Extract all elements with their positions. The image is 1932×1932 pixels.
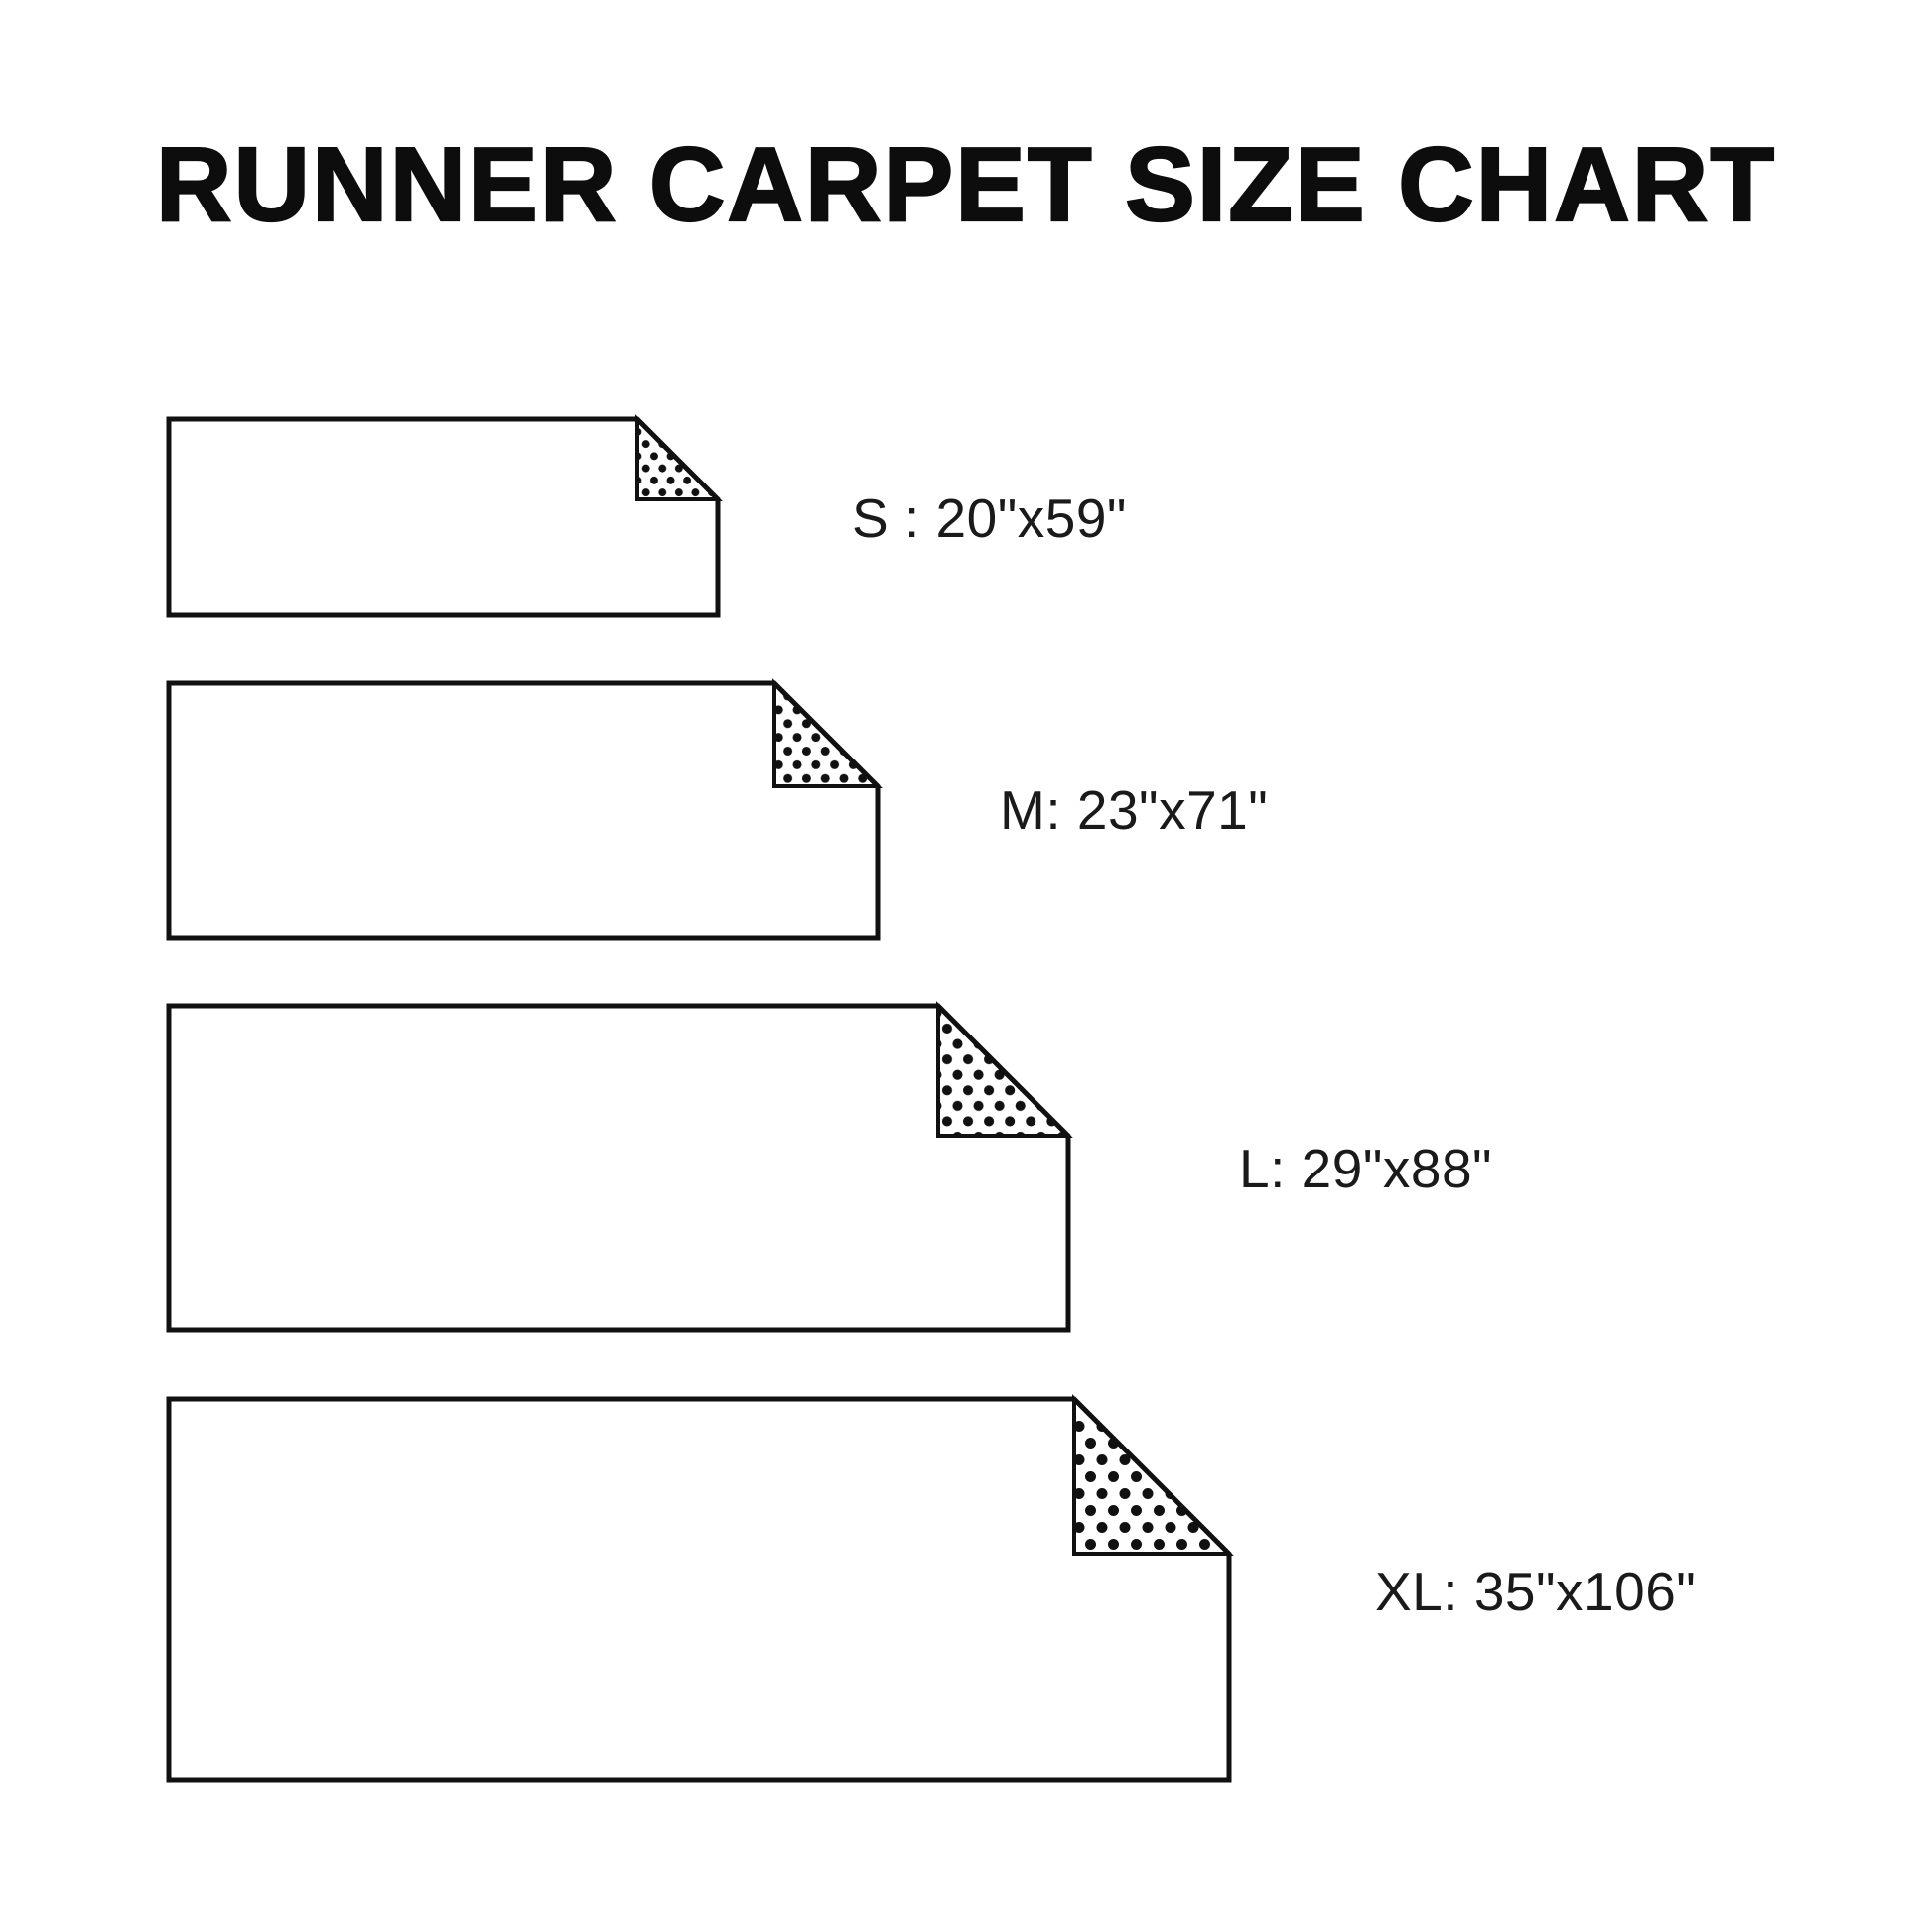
carpet-shape-xl — [169, 1399, 1229, 1780]
carpet-size-label-m: M: 23"x71" — [1000, 780, 1268, 840]
carpet-size-label-l: L: 29"x88" — [1239, 1139, 1492, 1198]
carpet-size-label-s: S : 20"x59" — [852, 488, 1127, 548]
carpet-size-label-xl: XL: 35"x106" — [1375, 1562, 1696, 1621]
carpet-fold-flap-xl — [1074, 1399, 1229, 1554]
carpet-shape-m — [169, 683, 878, 938]
carpet-fold-flap-s — [637, 419, 718, 499]
carpet-shape-l — [169, 1006, 1068, 1330]
runner-carpet-size-chart: RUNNER CARPET SIZE CHART S : 20"x59" M: … — [0, 0, 1932, 1932]
carpet-diagram — [0, 0, 1932, 1932]
carpet-fold-flap-l — [938, 1006, 1068, 1136]
carpet-fold-flap-m — [774, 683, 878, 786]
